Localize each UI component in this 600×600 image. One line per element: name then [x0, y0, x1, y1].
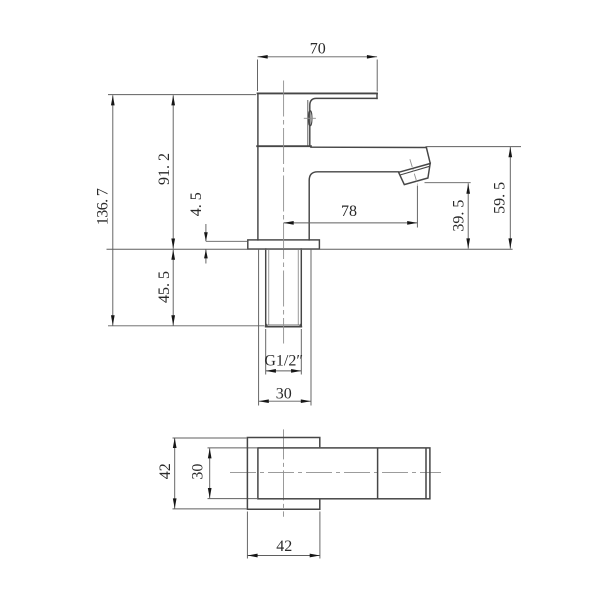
svg-text:42: 42 — [276, 538, 292, 555]
svg-text:70: 70 — [310, 40, 326, 57]
svg-text:42: 42 — [157, 463, 174, 479]
svg-text:45. 5: 45. 5 — [156, 271, 173, 303]
svg-text:30: 30 — [276, 386, 292, 403]
svg-text:G1/2″: G1/2″ — [264, 353, 303, 370]
svg-text:78: 78 — [341, 203, 357, 220]
svg-text:91. 2: 91. 2 — [156, 153, 173, 185]
svg-text:39. 5: 39. 5 — [450, 200, 467, 232]
svg-text:59. 5: 59. 5 — [492, 182, 509, 214]
svg-text:4. 5: 4. 5 — [188, 192, 205, 216]
svg-text:136. 7: 136. 7 — [95, 188, 112, 225]
svg-text:30: 30 — [190, 464, 207, 480]
